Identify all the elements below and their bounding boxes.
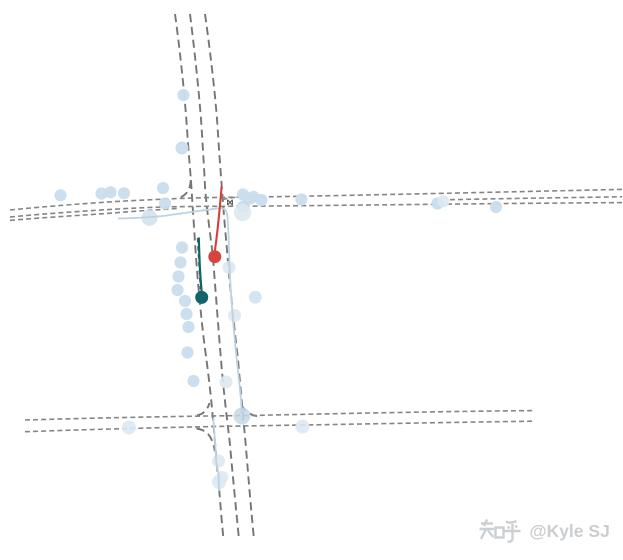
svg-text:@Kyle SJ: @Kyle SJ — [530, 521, 610, 541]
